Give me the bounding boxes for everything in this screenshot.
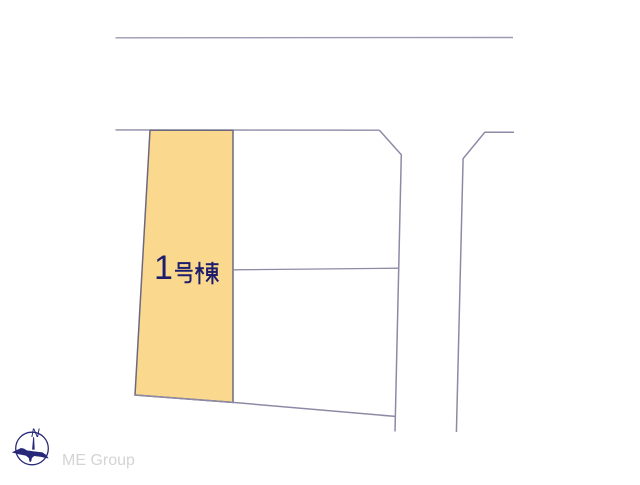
- svg-text:N: N: [31, 426, 40, 440]
- svg-text:1: 1: [154, 249, 173, 287]
- svg-text:ME Group: ME Group: [62, 452, 135, 469]
